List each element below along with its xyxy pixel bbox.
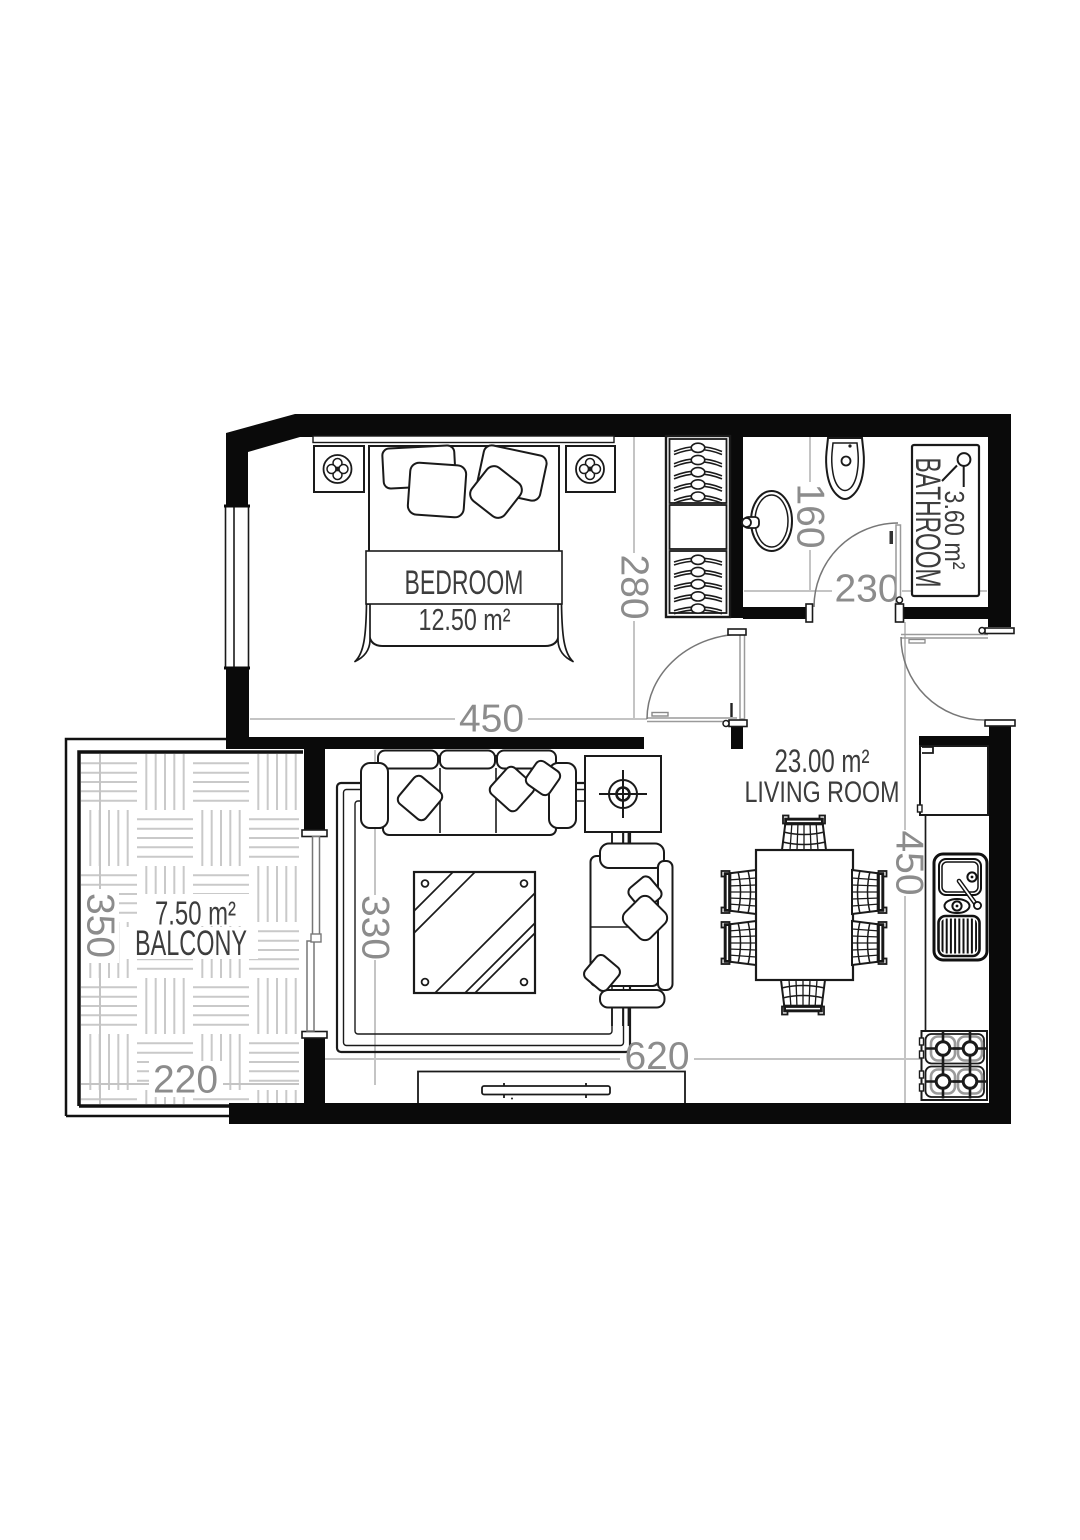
svg-text:3.60 m²: 3.60 m² bbox=[939, 491, 970, 570]
svg-text:12.50 m²: 12.50 m² bbox=[419, 602, 511, 637]
svg-text:330: 330 bbox=[354, 895, 397, 960]
svg-text:160: 160 bbox=[789, 483, 832, 548]
svg-text:BEDROOM: BEDROOM bbox=[405, 564, 524, 602]
svg-text:450: 450 bbox=[459, 698, 524, 741]
svg-text:LIVING ROOM: LIVING ROOM bbox=[745, 776, 900, 809]
svg-text:230: 230 bbox=[834, 568, 899, 611]
svg-text:350: 350 bbox=[79, 893, 122, 958]
svg-text:620: 620 bbox=[624, 1035, 689, 1078]
svg-text:BALCONY: BALCONY bbox=[135, 924, 247, 963]
svg-text:23.00 m²: 23.00 m² bbox=[775, 743, 870, 779]
svg-text:450: 450 bbox=[888, 830, 931, 895]
svg-text:280: 280 bbox=[613, 554, 656, 619]
svg-text:220: 220 bbox=[153, 1059, 218, 1102]
